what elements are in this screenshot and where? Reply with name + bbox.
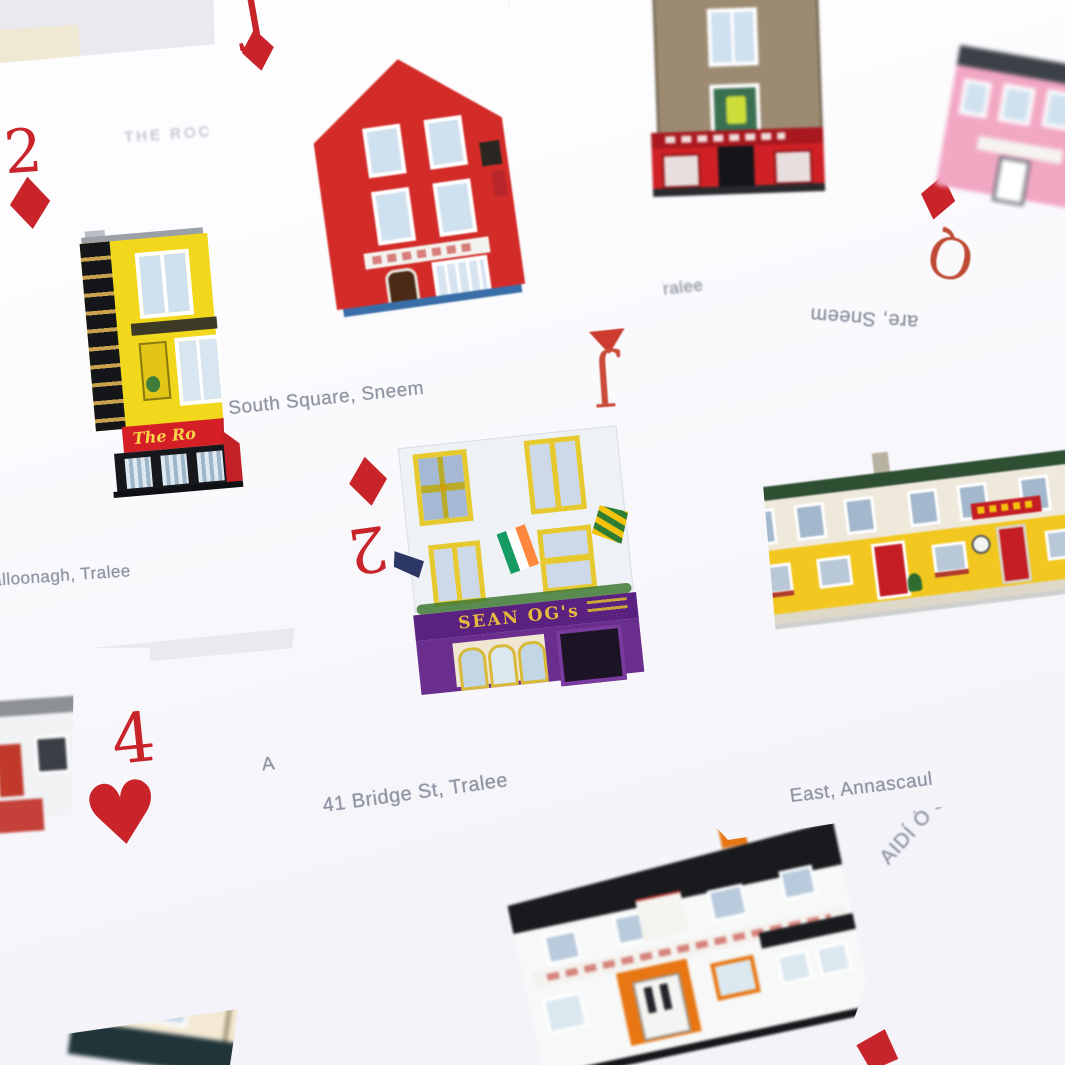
building-brown-tall-illustration xyxy=(642,0,829,213)
diamond-icon: ♦ xyxy=(0,165,66,243)
photo-scattered-playing-cards: 2 ♦ THE ROC alloonagh, Tralee The Ro J ♦… xyxy=(0,0,1065,1065)
diamond-icon: ♦ xyxy=(227,18,288,84)
caption-partial-a: A xyxy=(261,753,276,776)
rank-label: 2 xyxy=(344,516,392,583)
building-rock-pub-illustration: The Ro xyxy=(67,220,242,500)
building-sean-ogs-illustration: SEAN OG's xyxy=(388,424,653,696)
rank-label: J xyxy=(590,351,619,415)
building-red-gable-illustration xyxy=(304,46,527,318)
heart-icon: ♥ xyxy=(78,767,166,863)
